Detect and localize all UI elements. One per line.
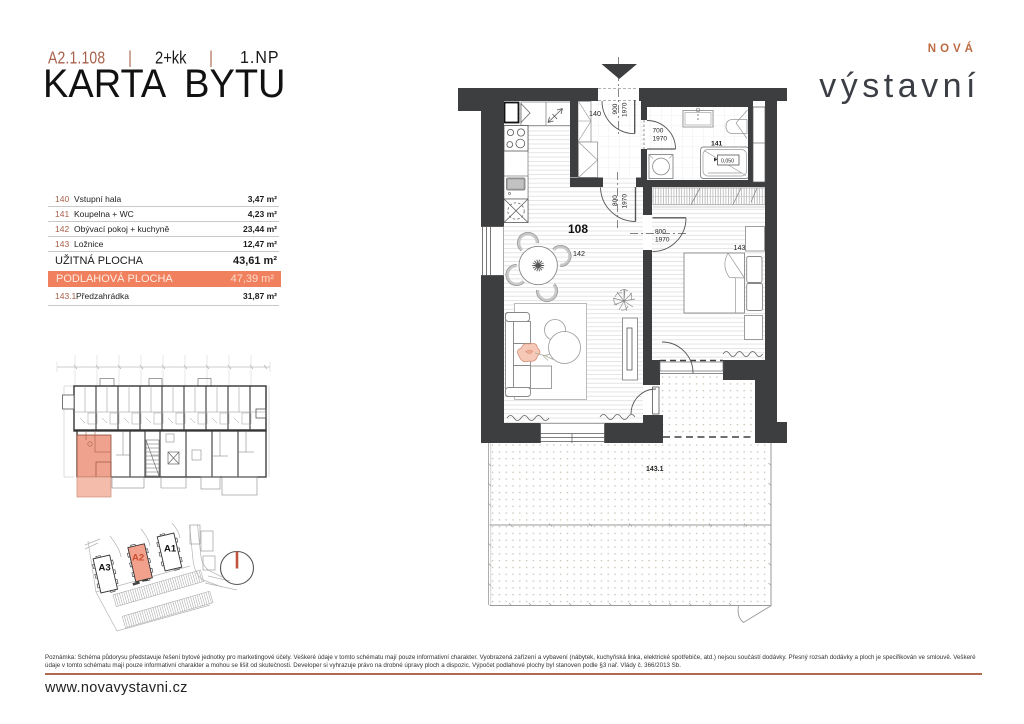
svg-text:143: 143: [734, 243, 746, 252]
svg-text:143.1: 143.1: [646, 466, 664, 473]
svg-text:141: 141: [711, 141, 723, 148]
svg-text:1970: 1970: [622, 194, 629, 209]
svg-text:0,050: 0,050: [721, 159, 734, 165]
svg-text:108: 108: [568, 222, 588, 236]
svg-text:A3: A3: [99, 563, 111, 574]
svg-text:1970: 1970: [622, 102, 629, 117]
svg-text:900: 900: [612, 103, 619, 114]
svg-text:A2: A2: [132, 553, 144, 564]
svg-text:A1: A1: [164, 544, 177, 555]
svg-text:142: 142: [573, 249, 585, 258]
svg-text:800: 800: [655, 229, 666, 236]
svg-text:1970: 1970: [655, 237, 670, 244]
svg-text:1970: 1970: [653, 136, 668, 143]
svg-text:140: 140: [589, 109, 601, 118]
svg-text:700: 700: [653, 128, 664, 135]
svg-text:800: 800: [612, 195, 619, 206]
